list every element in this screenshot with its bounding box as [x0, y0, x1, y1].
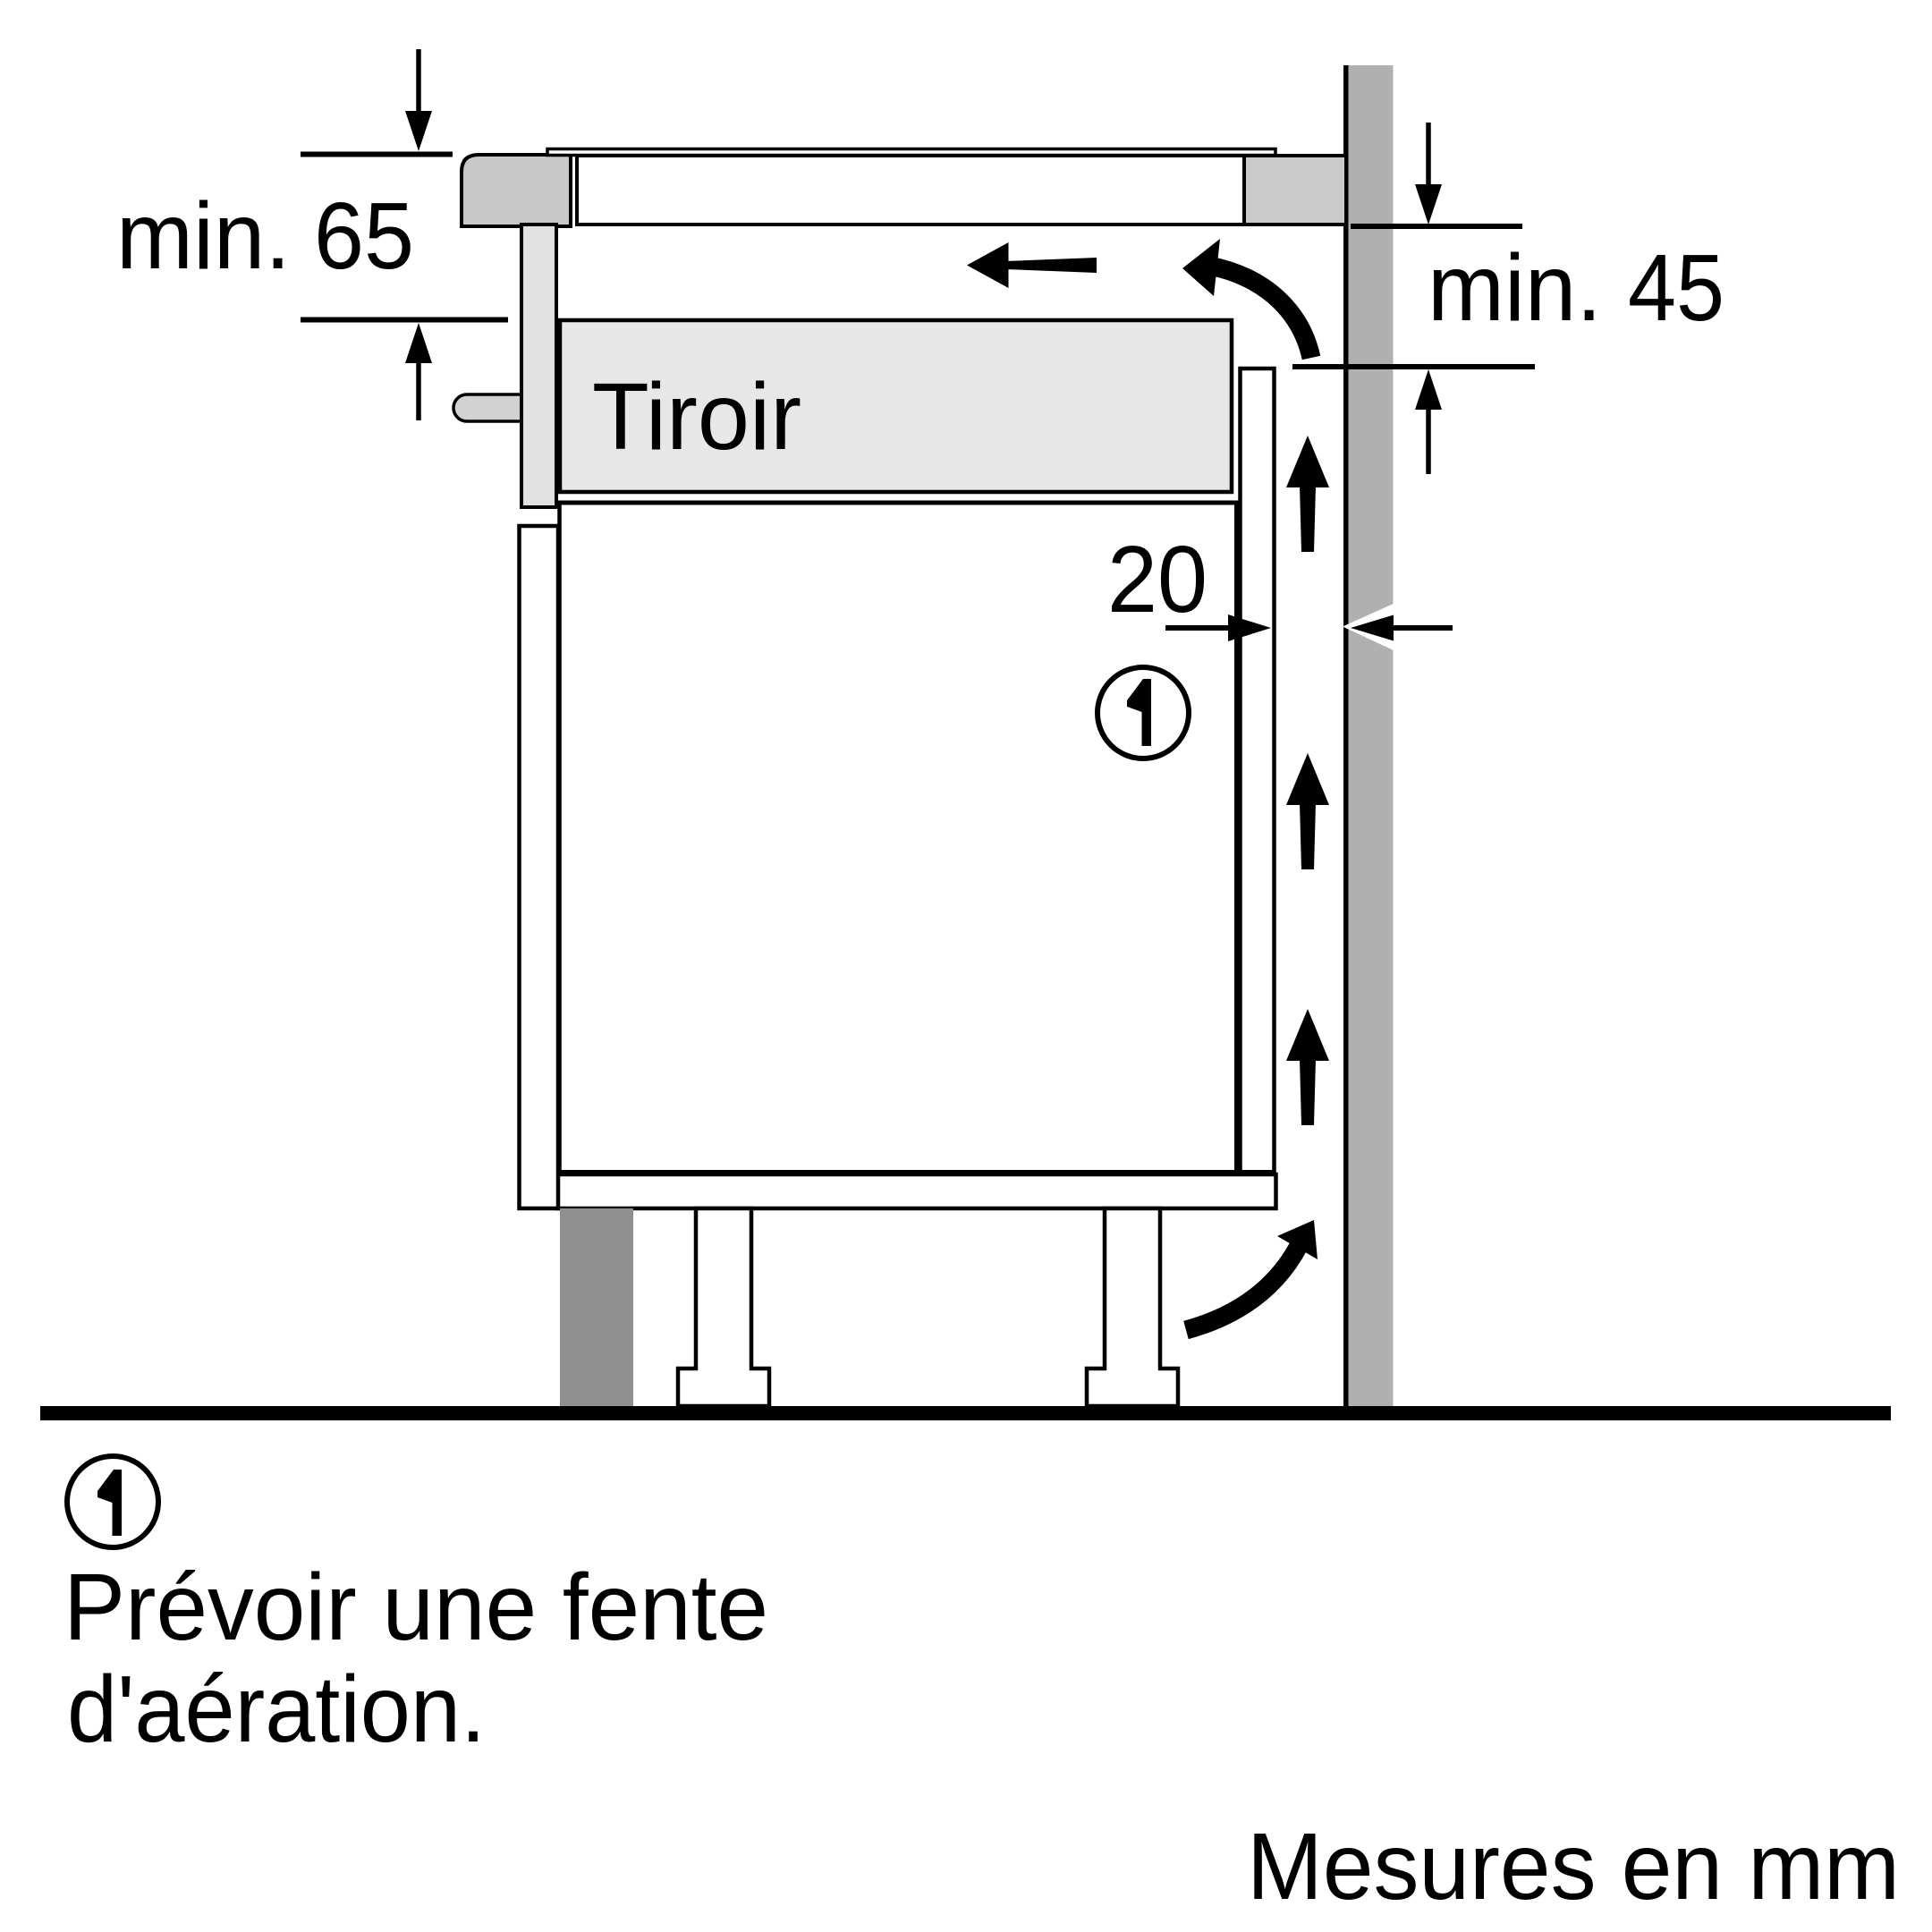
- svg-text:65: 65: [314, 183, 414, 289]
- svg-text:Prévoir une fente: Prévoir une fente: [64, 1555, 768, 1660]
- svg-text:Mesures en mm: Mesures en mm: [1247, 1814, 1900, 1919]
- svg-text:min.: min.: [1428, 235, 1602, 341]
- svg-text:d'aération.: d'aération.: [67, 1657, 486, 1762]
- svg-text:45: 45: [1628, 235, 1724, 341]
- svg-text:min.: min.: [116, 183, 291, 289]
- svg-text:Tiroir: Tiroir: [592, 364, 801, 470]
- svg-text:20: 20: [1107, 527, 1207, 632]
